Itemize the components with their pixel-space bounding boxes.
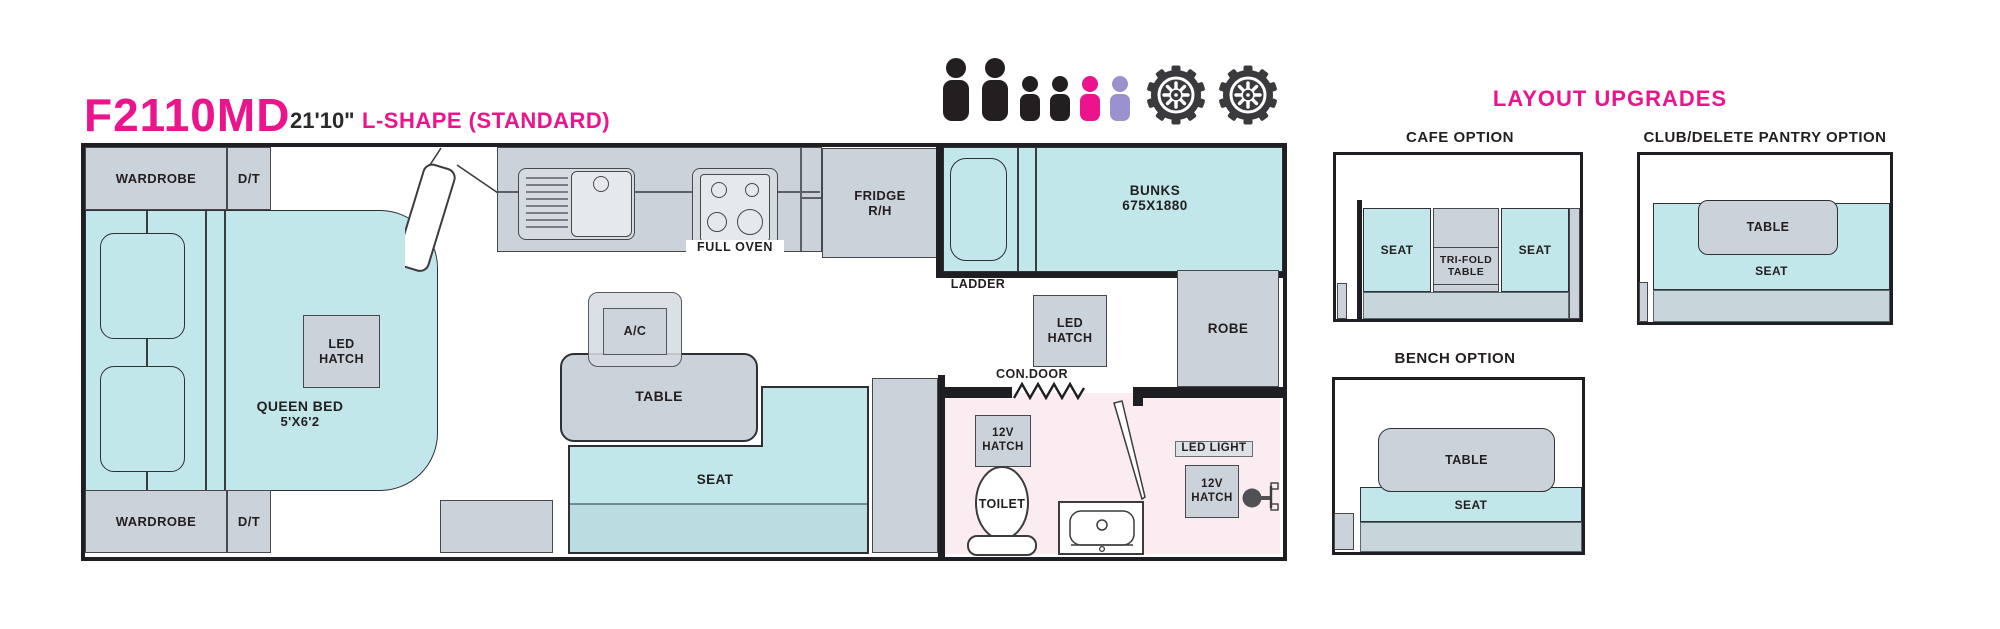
club-seat-base [1653, 290, 1890, 322]
bathroom-wall [945, 387, 1012, 398]
shower-head-icon [1238, 478, 1284, 516]
bench-option-heading: BENCH OPTION [1355, 350, 1555, 368]
concertina-door [1012, 381, 1088, 401]
ladder-text: LADDER [951, 277, 1005, 292]
bench-table-text: TABLE [1445, 453, 1488, 468]
wheel-icon [1147, 66, 1206, 125]
cafe-seat-right: SEAT [1501, 208, 1569, 292]
wardrobe-top: WARDROBE [85, 147, 227, 210]
bench-seat-base [1360, 522, 1582, 552]
cooktop-plate [700, 174, 770, 242]
cafe-tri-fold-table: TRI-FOLD TABLE [1433, 247, 1499, 285]
wardrobe-top-label: WARDROBE [116, 171, 196, 186]
wheel-icon [1219, 66, 1278, 125]
dressing-table-bottom: D/T [227, 490, 271, 553]
vanity-sink [1058, 501, 1146, 555]
bunk-mattress [950, 158, 1007, 261]
bench-table: TABLE [1378, 428, 1555, 492]
queen-bed-label: QUEEN BED 5'X6'2 [222, 398, 378, 429]
toilet-text: TOILET [979, 497, 1026, 512]
seat-label: SEAT [600, 471, 830, 489]
cafe-wall-tick [1357, 200, 1362, 319]
ensuite-side-wall [938, 375, 945, 557]
cafe-seat-left: SEAT [1363, 208, 1431, 292]
dt-bottom-label: D/T [238, 514, 260, 529]
full-oven-label: FULL OVEN [686, 240, 784, 255]
seat-text: SEAT [697, 472, 734, 488]
bunks-size: 675X1880 [1060, 198, 1250, 213]
floor-cabinet [440, 500, 553, 553]
bunk-wall [936, 147, 943, 277]
wardrobe-bottom: WARDROBE [85, 490, 227, 553]
bunks-name: BUNKS [1060, 183, 1250, 198]
wardrobe-bottom-label: WARDROBE [116, 514, 196, 529]
bench-seam [800, 197, 821, 199]
bathroom-wall [1133, 387, 1283, 398]
queen-bed-size: 5'X6'2 [222, 414, 378, 429]
bench-seat-text: SEAT [1455, 498, 1488, 512]
child-purple-icon [1110, 76, 1130, 121]
club-option-heading: CLUB/DELETE PANTRY OPTION [1585, 129, 1945, 147]
bench-seat-label: SEAT [1360, 497, 1582, 513]
hatch-12v-right-label: 12V HATCH [1190, 478, 1234, 505]
cafe-seat-base [1363, 292, 1569, 319]
club-table: TABLE [1698, 200, 1838, 255]
club-left-step [1639, 282, 1648, 322]
bunk-divider [1017, 148, 1019, 271]
capacity-icons [935, 54, 1287, 126]
sink-drainer [522, 172, 572, 236]
fridge-line1: FRIDGE [854, 188, 906, 203]
cafe-heading-text: CAFE OPTION [1406, 129, 1514, 147]
bunk-divider [1035, 148, 1037, 271]
cafe-option-heading: CAFE OPTION [1355, 129, 1565, 147]
club-seat-label: SEAT [1653, 263, 1890, 279]
led-hatch-bed-label: LED HATCH [316, 337, 368, 367]
robe-label: ROBE [1208, 321, 1249, 337]
led-hatch-hall-label: LED HATCH [1044, 316, 1096, 346]
led-light-text: LED LIGHT [1181, 442, 1246, 456]
con-door-text: CON.DOOR [996, 367, 1068, 382]
dressing-table-top: D/T [227, 147, 271, 210]
floorplan-page: F2110MD 21'10" L-SHAPE (STANDARD) [0, 0, 2000, 629]
bench-seam [800, 148, 802, 251]
club-seat-text: SEAT [1755, 264, 1788, 278]
fridge: FRIDGE R/H [822, 148, 938, 258]
entry-door [405, 143, 505, 283]
dinette-table-label: TABLE [560, 386, 758, 406]
cafe-seat-right-label: SEAT [1519, 243, 1552, 257]
robe: ROBE [1177, 270, 1279, 387]
ladder-label: LADDER [940, 277, 1016, 291]
club-table-text: TABLE [1747, 220, 1790, 235]
fridge-line2: R/H [854, 203, 906, 218]
bench-left-step [1334, 513, 1354, 550]
ac-unit-inner: A/C [603, 308, 667, 355]
bunks-label: BUNKS 675X1880 [1060, 183, 1250, 213]
cafe-right-column [1569, 208, 1580, 319]
pillow [100, 233, 185, 339]
child-icon [1050, 76, 1070, 121]
fridge-label: FRIDGE R/H [854, 188, 906, 219]
burner [707, 212, 727, 232]
hatch-12v-left-label: 12V HATCH [981, 427, 1025, 454]
bed-rail-line [205, 211, 207, 490]
child-icon [1020, 76, 1040, 121]
burner [711, 182, 727, 198]
pantry-cabinet [872, 378, 938, 553]
adult-icon [982, 58, 1008, 121]
burner [737, 209, 763, 235]
toilet-label: TOILET [963, 497, 1041, 512]
child-pink-icon [1080, 76, 1100, 121]
full-oven-text: FULL OVEN [697, 240, 773, 255]
bench-heading-text: BENCH OPTION [1394, 350, 1515, 368]
cafe-left-step [1337, 283, 1347, 319]
sink-tap [593, 176, 609, 192]
pillow [100, 366, 185, 472]
hatch-12v-right: 12V HATCH [1185, 465, 1239, 518]
upgrades-title-text: LAYOUT UPGRADES [1493, 86, 1727, 112]
led-light-label: LED LIGHT [1175, 441, 1253, 457]
bathroom-door [1100, 396, 1150, 506]
club-heading-text: CLUB/DELETE PANTRY OPTION [1643, 129, 1886, 147]
model-length: 21'10" [290, 108, 355, 134]
bed-rail-line [224, 211, 226, 490]
model-title: F2110MD [84, 88, 290, 142]
led-hatch-bed: LED HATCH [303, 315, 380, 388]
cafe-tri-fold-label: TRI-FOLD TABLE [1439, 254, 1493, 279]
con-door-label: CON.DOOR [992, 368, 1072, 381]
queen-bed-name: QUEEN BED [222, 398, 378, 414]
adult-icon [943, 58, 969, 121]
burner [745, 183, 759, 197]
dt-top-label: D/T [238, 171, 260, 186]
table-text: TABLE [635, 388, 683, 405]
cafe-seat-left-label: SEAT [1381, 243, 1414, 257]
led-hatch-hall: LED HATCH [1033, 295, 1107, 367]
layout-name: L-SHAPE (STANDARD) [362, 108, 610, 134]
upgrades-title: LAYOUT UPGRADES [1448, 86, 1772, 112]
ac-text: A/C [624, 324, 647, 339]
